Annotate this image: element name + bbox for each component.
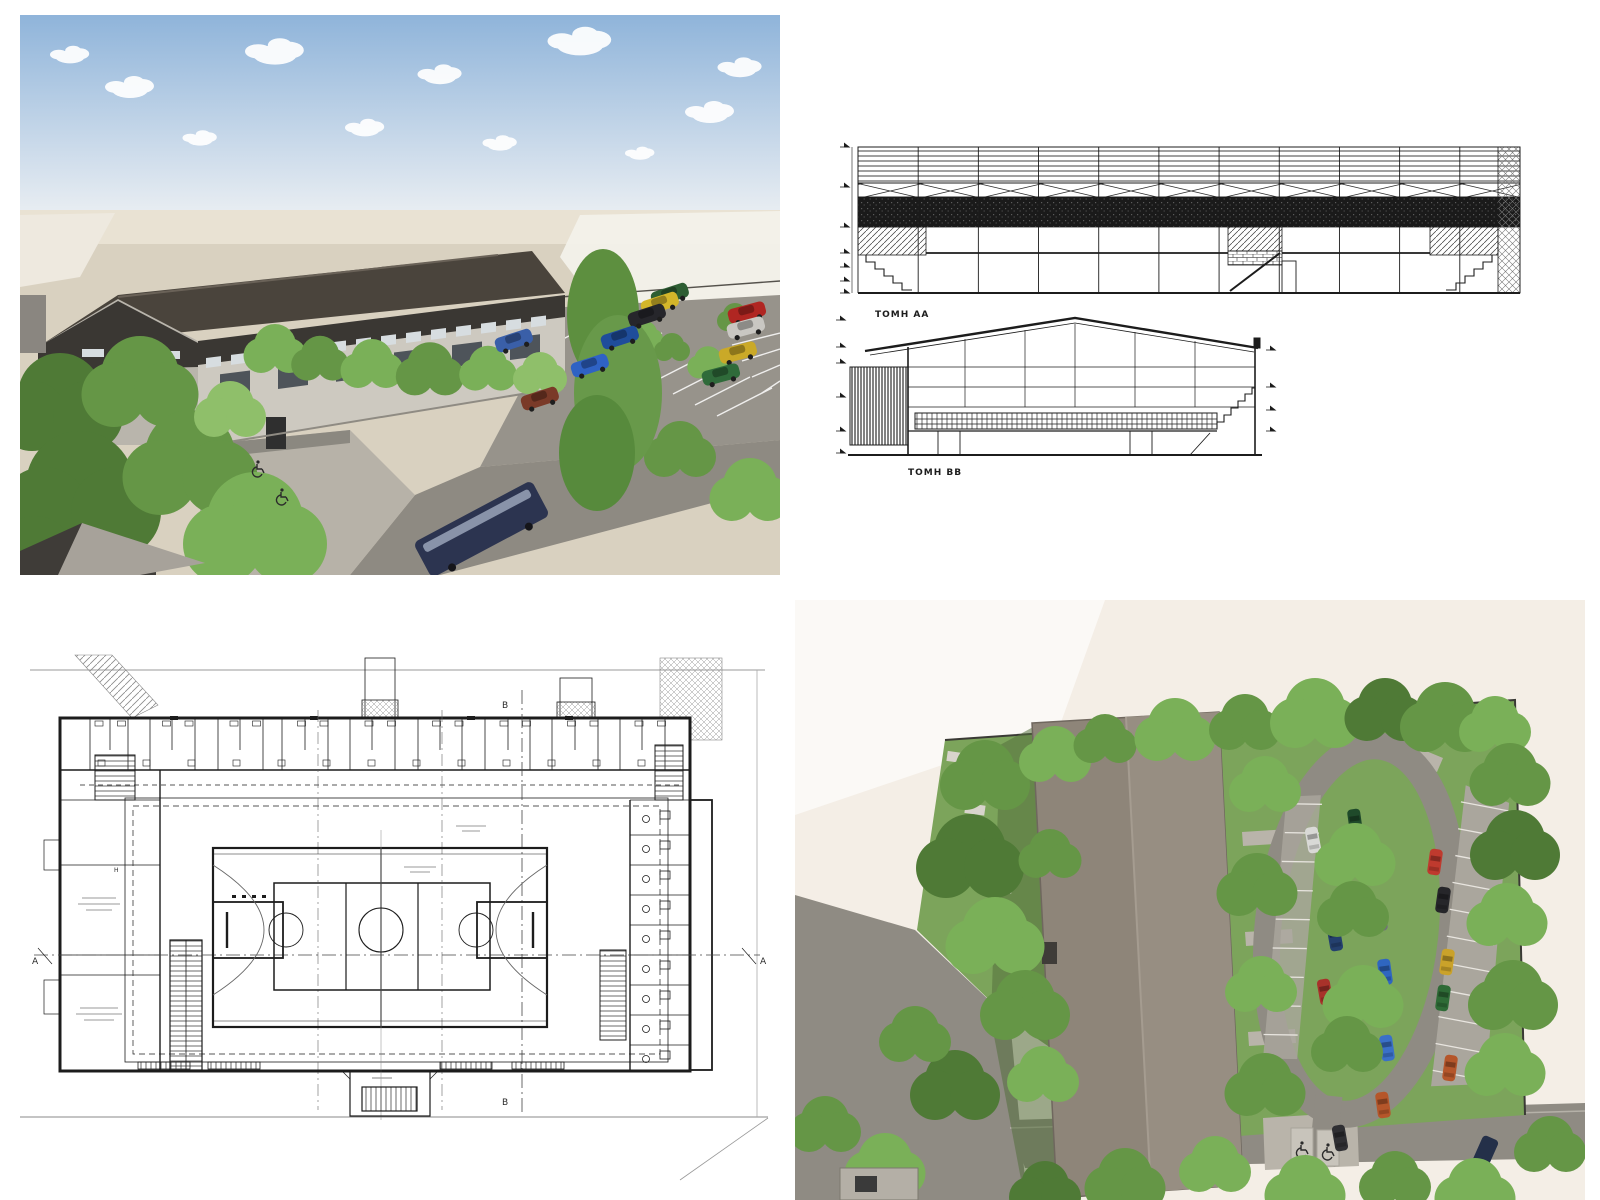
sky: [20, 15, 780, 212]
elevation-flag: [1266, 347, 1275, 351]
main-entrance: [342, 1071, 438, 1116]
left-tribune-steps: [866, 255, 912, 290]
section-marker-b-bottom: B: [502, 1098, 508, 1108]
door: [1282, 261, 1296, 293]
stairs-top-right: [655, 745, 683, 800]
elevation-flag: [1266, 384, 1275, 388]
door: [938, 431, 960, 455]
project-sheet: ТОМН АА Т: [0, 0, 1600, 1200]
section-aa-label: ТОМН АА: [875, 310, 929, 320]
right-tribune-steps: [1446, 255, 1492, 290]
roof-outline: [865, 318, 1258, 351]
section-drawings: ТОМН АА Т: [830, 135, 1540, 480]
section-drawings-panel: ТОМН АА Т: [830, 135, 1540, 480]
entrance-canopy: [362, 658, 595, 722]
perspective-render: [20, 15, 780, 575]
tribune-truss-band: [915, 413, 1217, 429]
right-steps: [1217, 388, 1255, 429]
stairs-right: [600, 950, 626, 1040]
section-aa-drawing: [840, 144, 1520, 294]
perspective-render-panel: [20, 15, 780, 575]
aerial-render-panel: [795, 600, 1585, 1200]
entry-path-hatch: [75, 655, 158, 718]
elevation-flag: [836, 344, 845, 348]
elevation-flag: [840, 278, 849, 282]
elevation-flag: [836, 428, 845, 432]
building-outline: [60, 718, 690, 1071]
end-wall-hatch: [1498, 147, 1520, 293]
aerial-render: [795, 600, 1585, 1200]
elevation-flag: [840, 250, 849, 254]
floor-plan-panel: A A B B H: [20, 650, 780, 1200]
elevation-flag: [840, 264, 849, 268]
right-tribune-hatch: [1430, 227, 1498, 255]
elevation-flag: [840, 290, 849, 294]
door: [1130, 431, 1152, 455]
center-hatch: [1228, 227, 1282, 251]
section-bb-drawing: [836, 317, 1275, 456]
elevation-flag: [1266, 428, 1275, 432]
elevation-flag: [836, 360, 845, 364]
side-porch: [44, 980, 60, 1014]
elevation-flag: [836, 450, 845, 454]
hall-roof: [1032, 712, 1243, 1200]
section-marker-b-top: B: [502, 701, 508, 711]
elevation-flag: [840, 224, 849, 228]
elevation-flag: [836, 394, 845, 398]
neighbour-structure: [840, 1168, 918, 1200]
elevation-markers: [840, 144, 849, 294]
annex-corrugated: [850, 367, 908, 445]
section-marker-a-left: A: [32, 957, 39, 967]
elevation-flag: [840, 184, 849, 188]
neighbour-building: [20, 295, 46, 353]
roof-truss-band: [858, 147, 1520, 183]
left-tribune-hatch: [858, 227, 926, 255]
elevation-flag: [840, 144, 849, 148]
parapet: [1254, 338, 1260, 348]
elevation-flag: [1266, 407, 1275, 411]
elevation-flag: [836, 317, 845, 321]
small-stair: [1190, 433, 1210, 455]
section-marker-a-right: A: [760, 957, 767, 967]
section-bb-label: ТОМН ВВ: [908, 468, 962, 478]
bracing-band: [858, 183, 1520, 197]
concrete-band: [858, 197, 1520, 227]
side-porch: [44, 840, 60, 870]
grid-marker-h: H: [114, 867, 119, 874]
right-annex: [690, 800, 712, 1070]
stairs-top-left: [95, 755, 135, 800]
floor-plan: A A B B H: [20, 650, 780, 1200]
